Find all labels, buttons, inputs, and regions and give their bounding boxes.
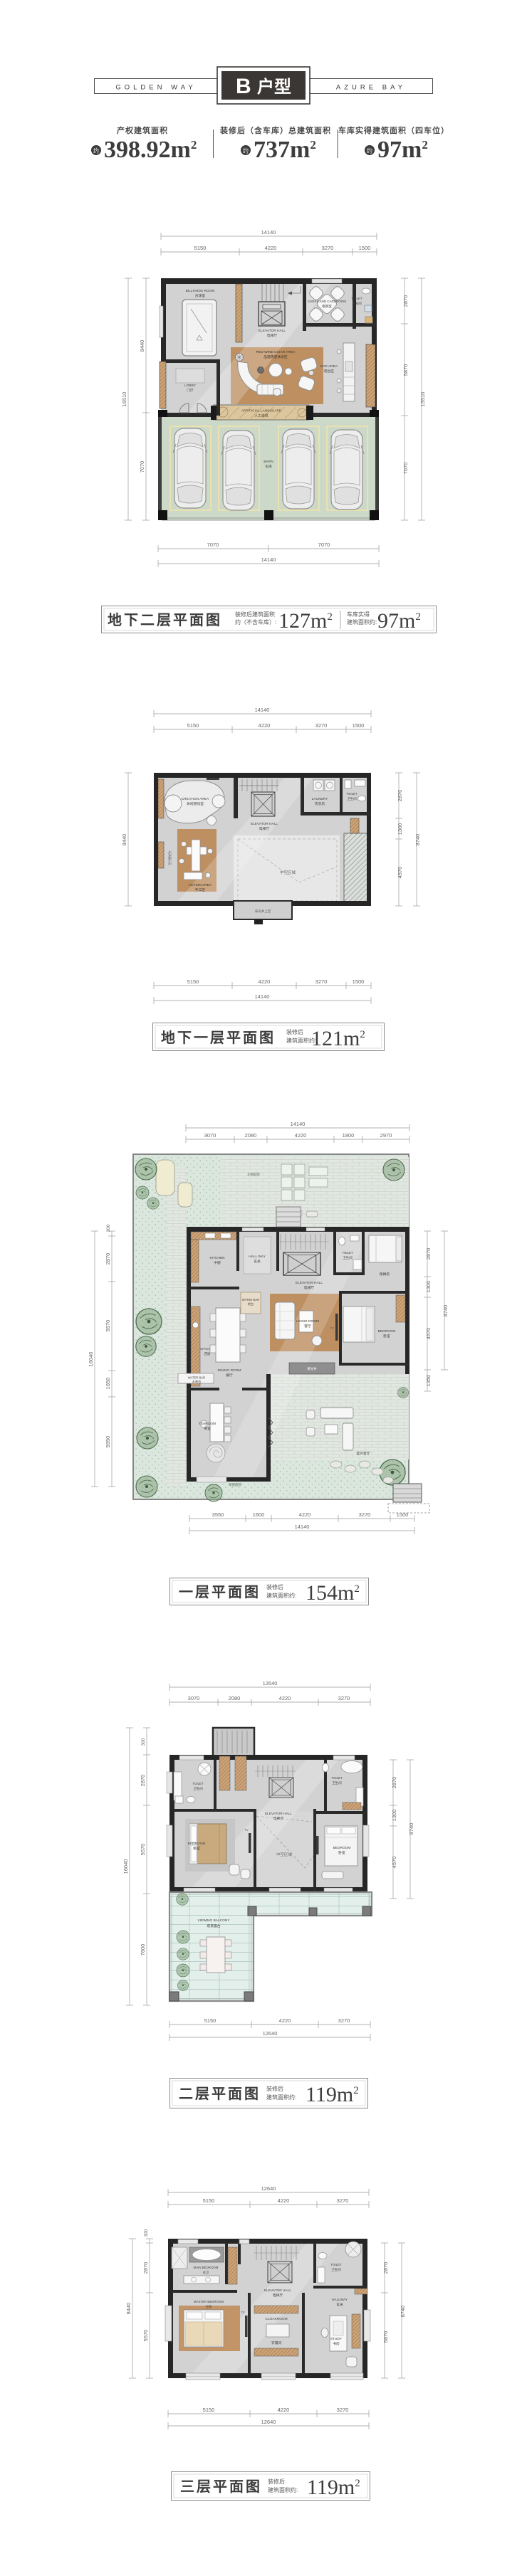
svg-text:15510: 15510 [419,392,426,407]
svg-text:1600: 1600 [253,1511,265,1518]
svg-text:300: 300 [144,2229,149,2237]
svg-text:1350: 1350 [425,1375,432,1387]
svg-text:卫生间: 卫生间 [331,2267,340,2272]
svg-text:装修后: 装修后 [266,2085,283,2092]
svg-text:4220: 4220 [259,978,271,985]
svg-text:TV: TV [241,2311,245,2314]
svg-text:14140: 14140 [255,707,270,713]
svg-text:WATER BAR: WATER BAR [188,1376,205,1380]
svg-text:5150: 5150 [194,245,207,251]
svg-text:1500: 1500 [359,245,371,251]
svg-text:CHESS AND CARDROOM: CHESS AND CARDROOM [308,300,346,303]
svg-text:5570: 5570 [105,1320,111,1332]
svg-text:卧室: 卧室 [383,1334,390,1339]
svg-text:TOILET: TOILET [330,2263,342,2266]
svg-text:16040: 16040 [122,1859,129,1874]
svg-text:3070: 3070 [188,1695,200,1701]
svg-text:7070: 7070 [402,463,409,475]
svg-text:ELEVATOR HALL: ELEVATOR HALL [265,1812,292,1816]
svg-text:玩具展示区: 玩具展示区 [168,851,172,865]
svg-text:BILLIARDS ROOM: BILLIARDS ROOM [186,289,215,293]
svg-text:5150: 5150 [204,2017,216,2024]
svg-text:16040: 16040 [88,1352,94,1367]
svg-text:5150: 5150 [187,722,199,729]
svg-text:卧室: 卧室 [193,1846,200,1851]
svg-text:5150: 5150 [203,2407,215,2413]
svg-text:TV: TV [244,1828,249,1832]
svg-text:5870: 5870 [382,2331,389,2343]
svg-text:3270: 3270 [338,1695,350,1701]
svg-text:3270: 3270 [315,722,328,729]
svg-text:主卧: 主卧 [206,2304,212,2309]
svg-text:电梯厅: 电梯厅 [304,1285,315,1290]
svg-text:5870: 5870 [402,364,409,376]
svg-text:ARTIFICIAL LANDSCAPE: ARTIFICIAL LANDSCAPE [241,409,281,413]
svg-text:建筑面积约:: 建筑面积约: [266,2094,296,2101]
svg-text:WATER BAR: WATER BAR [242,1298,259,1302]
svg-text:车库实得: 车库实得 [347,611,370,618]
svg-text:品酒雪茄休息区: 品酒雪茄休息区 [263,354,288,359]
svg-text:ACTION AREA: ACTION AREA [189,883,212,887]
svg-text:吧台: 吧台 [248,1302,254,1307]
svg-text:保姆房: 保姆房 [380,1272,390,1277]
svg-text:12640: 12640 [263,2030,278,2037]
svg-text:茶室: 茶室 [204,1426,211,1431]
svg-text:LAUNDRY: LAUNDRY [312,797,329,801]
svg-text:1300: 1300 [397,823,403,835]
svg-text:2080: 2080 [245,1132,257,1139]
svg-text:3270: 3270 [338,2017,350,2024]
svg-text:MAIN BEDROOM: MAIN BEDROOM [194,2266,219,2269]
svg-text:4220: 4220 [299,1511,311,1518]
svg-text:3270: 3270 [322,245,334,251]
svg-text:8740: 8740 [408,1823,414,1835]
svg-text:衣帽间: 衣帽间 [271,2340,282,2345]
svg-text:8740: 8740 [400,2306,406,2318]
svg-text:1500: 1500 [353,978,365,985]
svg-text:8740: 8740 [414,834,421,846]
svg-text:南侧庭院: 南侧庭院 [229,1482,241,1487]
svg-text:TOILET: TOILET [192,1782,204,1785]
svg-text:8440: 8440 [139,340,145,352]
svg-text:约: 约 [367,147,372,154]
svg-text:119m2: 119m2 [307,2476,360,2499]
svg-text:玄关: 玄关 [254,1259,261,1264]
svg-text:7070: 7070 [318,542,330,548]
svg-text:2870: 2870 [382,2262,389,2274]
svg-text:14140: 14140 [295,1524,310,1530]
svg-text:2970: 2970 [380,1132,392,1139]
svg-text:DINING ROOM: DINING ROOM [217,1368,241,1373]
svg-text:电梯厅: 电梯厅 [259,826,270,831]
svg-text:7070: 7070 [139,461,145,473]
svg-text:2870: 2870 [140,1775,146,1787]
svg-text:观景露台: 观景露台 [207,1923,220,1928]
svg-text:4570: 4570 [397,867,403,879]
svg-text:3270: 3270 [315,978,328,985]
svg-text:中空区域: 中空区域 [276,1852,293,1857]
svg-text:BEDROOM: BEDROOM [188,1842,206,1846]
svg-text:约: 约 [93,147,99,154]
svg-text:4220: 4220 [279,2017,291,2024]
svg-text:BEDROOM: BEDROOM [333,1846,351,1850]
svg-text:3550: 3550 [212,1511,224,1518]
svg-text:北侧庭院: 北侧庭院 [247,1172,260,1177]
svg-text:电梯厅: 电梯厅 [267,333,278,338]
svg-text:119m2: 119m2 [306,2083,359,2106]
svg-text:4220: 4220 [259,722,271,729]
svg-text:B 户型: B 户型 [236,75,291,98]
svg-text:VIEWING BALCONY: VIEWING BALCONY [197,1918,230,1923]
svg-text:5570: 5570 [140,1844,146,1856]
svg-text:地下二层平面图: 地下二层平面图 [108,612,222,628]
svg-text:4220: 4220 [279,1695,291,1701]
svg-text:3270: 3270 [337,2197,349,2204]
svg-text:ELEVATOR HALL: ELEVATOR HALL [264,2289,291,2293]
svg-text:休闲游戏室: 休闲游戏室 [187,801,204,806]
svg-text:14140: 14140 [291,1121,306,1127]
svg-text:TOILET: TOILET [346,792,358,796]
svg-text:1800: 1800 [343,1132,355,1139]
svg-text:卫生间: 卫生间 [352,301,361,306]
svg-text:127m2: 127m2 [278,609,333,633]
svg-text:8440: 8440 [125,2303,132,2315]
svg-text:BAR AREA: BAR AREA [320,364,338,369]
svg-text:2870: 2870 [391,1777,397,1789]
svg-text:2870: 2870 [397,790,403,802]
svg-text:AZURE BAY: AZURE BAY [336,84,406,92]
svg-text:卫生间: 卫生间 [193,1786,202,1791]
svg-text:中厨: 中厨 [214,1260,221,1265]
svg-text:电梯厅: 电梯厅 [273,1816,284,1821]
svg-text:主卫: 主卫 [203,2270,209,2274]
svg-text:16510: 16510 [121,392,127,407]
svg-text:ELEVATOR HALL: ELEVATOR HALL [296,1281,323,1285]
svg-text:300: 300 [141,1738,146,1746]
svg-text:TOILET: TOILET [342,1251,353,1255]
svg-text:TOILET: TOILET [351,297,362,300]
svg-text:2870: 2870 [105,1253,111,1265]
svg-text:吧台区: 吧台区 [324,369,335,374]
svg-text:14140: 14140 [255,993,270,1000]
svg-text:HALLWAY: HALLWAY [332,2298,348,2302]
svg-text:洗衣房: 洗衣房 [315,801,325,806]
svg-text:7600: 7600 [140,1944,146,1956]
svg-text:RED WINE CIGAR AREA: RED WINE CIGAR AREA [256,350,296,354]
svg-text:1300: 1300 [425,1281,432,1293]
svg-text:300: 300 [106,1224,111,1232]
svg-text:5950: 5950 [105,1436,111,1448]
svg-text:建筑面积约:: 建筑面积约: [268,2486,298,2493]
svg-text:2080: 2080 [229,1695,241,1701]
svg-text:二层平面图: 二层平面图 [179,2086,261,2102]
svg-text:ELEVATOR HALL: ELEVATOR HALL [251,822,278,826]
svg-text:STUDY: STUDY [330,2337,343,2341]
svg-text:2870: 2870 [142,2262,149,2274]
svg-text:5150: 5150 [203,2197,215,2204]
svg-text:7070: 7070 [207,542,219,548]
svg-text:LIVING ROOM: LIVING ROOM [296,1319,319,1324]
svg-text:KITCHEN: KITCHEN [209,1256,225,1260]
svg-text:采光井上空: 采光井上空 [255,909,271,914]
svg-text:CREATION AREA: CREATION AREA [182,797,209,801]
svg-text:1300: 1300 [391,1810,397,1822]
svg-text:4220: 4220 [278,2197,290,2204]
svg-text:97m2: 97m2 [377,137,428,163]
svg-text:建筑面积约:: 建筑面积约: [347,618,377,625]
svg-text:台球室: 台球室 [195,293,206,298]
svg-text:1650: 1650 [105,1378,111,1390]
svg-text:装修后: 装修后 [266,1583,283,1590]
svg-text:装修后建筑面积: 装修后建筑面积 [235,611,275,618]
svg-text:4570: 4570 [425,1328,432,1340]
svg-text:3070: 3070 [204,1132,216,1139]
svg-text:8440: 8440 [121,834,127,846]
svg-text:97m2: 97m2 [377,609,421,633]
svg-text:人工造境: 人工造境 [254,413,268,418]
svg-text:398.92m2: 398.92m2 [104,137,197,163]
svg-text:电梯厅: 电梯厅 [273,2293,283,2298]
svg-text:TV: TV [330,1326,334,1330]
svg-text:4220: 4220 [278,2407,290,2413]
svg-text:书房: 书房 [333,2341,340,2346]
svg-text:ELEVATOR HALL: ELEVATOR HALL [259,329,286,333]
svg-text:门厅: 门厅 [187,388,194,393]
svg-text:装修后（含车库）总建筑面积: 装修后（含车库）总建筑面积 [219,125,331,135]
svg-text:2870: 2870 [402,295,409,307]
svg-text:12640: 12640 [263,1680,278,1686]
svg-text:CLOAKROOM: CLOAKROOM [265,2317,287,2321]
svg-text:1500: 1500 [353,722,365,729]
svg-text:卫生间: 卫生间 [332,1780,341,1785]
svg-text:HALL WAY: HALL WAY [249,1255,266,1259]
svg-text:棋牌室: 棋牌室 [322,304,332,309]
svg-text:14140: 14140 [261,229,276,236]
svg-text:手工区: 手工区 [195,887,206,892]
svg-text:车库实得建筑面积（四车位）: 车库实得建筑面积（四车位） [338,125,449,135]
svg-text:卧室: 卧室 [338,1850,345,1855]
svg-text:车库: 车库 [265,464,272,469]
svg-text:TEAROOM: TEAROOM [199,1422,216,1426]
svg-text:154m2: 154m2 [306,1581,360,1605]
svg-text:室外客厅: 室外客厅 [356,1451,370,1456]
svg-text:采光井: 采光井 [307,1366,317,1371]
svg-text:水吧台: 水吧台 [192,1379,202,1384]
svg-text:5150: 5150 [187,978,199,985]
svg-text:客厅: 客厅 [304,1324,311,1329]
svg-text:卫生间: 卫生间 [347,796,356,801]
svg-text:装修后: 装修后 [268,2478,285,2485]
svg-text:3270: 3270 [337,2407,349,2413]
svg-text:产权建筑面积: 产权建筑面积 [117,125,168,135]
svg-text:4220: 4220 [295,1132,307,1139]
svg-text:约（不含车库）:: 约（不含车库）: [235,618,276,625]
svg-text:4570: 4570 [391,1857,397,1869]
svg-text:121m2: 121m2 [311,1027,365,1050]
svg-text:地下一层平面图: 地下一层平面图 [161,1030,276,1046]
svg-text:玄关: 玄关 [336,2302,343,2307]
svg-text:建筑面积约:: 建筑面积约: [266,1592,296,1599]
svg-text:12640: 12640 [261,2419,276,2425]
svg-text:中空区域: 中空区域 [280,870,296,875]
svg-text:装修后: 装修后 [286,1028,303,1035]
svg-text:4220: 4220 [265,245,277,251]
svg-text:BEDROOM: BEDROOM [378,1329,396,1334]
svg-text:12640: 12640 [261,2185,276,2192]
svg-text:2870: 2870 [425,1248,432,1260]
svg-text:BARN: BARN [263,460,273,464]
svg-text:14140: 14140 [261,556,276,563]
svg-text:一层平面图: 一层平面图 [179,1584,261,1600]
svg-text:卫生间: 卫生间 [343,1255,352,1260]
svg-text:5570: 5570 [142,2330,149,2342]
svg-text:1500: 1500 [397,1511,409,1518]
svg-text:TOILET: TOILET [331,1776,343,1780]
svg-text:餐厅: 餐厅 [226,1373,233,1378]
svg-text:约: 约 [243,147,249,154]
svg-text:LOBBY: LOBBY [184,384,197,388]
svg-text:GOLDEN WAY: GOLDEN WAY [115,84,196,92]
svg-text:三层平面图: 三层平面图 [180,2479,262,2495]
svg-text:8740: 8740 [442,1305,449,1317]
svg-text:MASTER BEDROOM: MASTER BEDROOM [194,2300,224,2303]
svg-text:3270: 3270 [359,1511,371,1518]
svg-text:737m2: 737m2 [254,137,316,163]
